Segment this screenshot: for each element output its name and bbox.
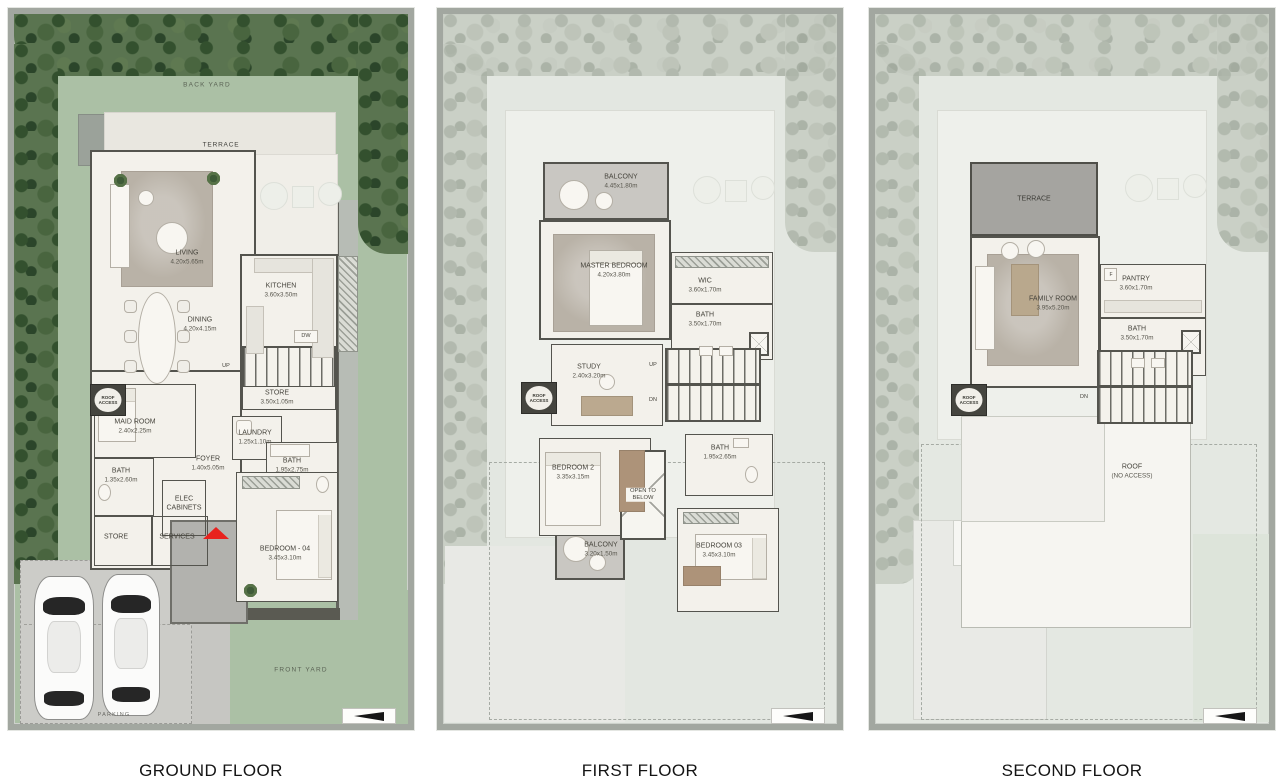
kitchen-counter xyxy=(312,258,334,358)
parking-label: PARKING xyxy=(98,712,131,718)
room-label-bath-a: BATH3.50x1.70m xyxy=(689,312,722,329)
second-floor-title: SECOND FLOOR xyxy=(869,761,1275,781)
room-label-dining: DINING4.20x4.15m xyxy=(184,317,217,334)
room-label-living: LIVING4.20x5.65m xyxy=(171,250,204,267)
plan-marker-icon xyxy=(1203,708,1257,724)
wardrobe xyxy=(619,450,645,512)
roof-access-icon: ROOF ACCESS xyxy=(956,388,983,412)
sink xyxy=(1131,358,1145,368)
room-label-bedroom2: BEDROOM 23.35x3.15m xyxy=(552,465,594,482)
room-label-elec: ELEC CABINETS xyxy=(164,495,204,513)
patio-chair xyxy=(693,176,721,204)
roof-access-icon: ROOF ACCESS xyxy=(95,388,122,412)
side-table xyxy=(138,190,154,206)
patio-table xyxy=(292,186,314,208)
patio-chair xyxy=(260,182,288,210)
sink xyxy=(1151,358,1165,368)
bathtub xyxy=(270,444,310,457)
dining-table xyxy=(138,292,176,384)
trees-texture xyxy=(14,44,58,584)
room-label-foyer: FOYER1.40x5.05m xyxy=(192,456,225,473)
room-label-balcony-b: BALCONY3.20x1.50m xyxy=(584,542,617,559)
fridge-label: F xyxy=(1109,272,1112,278)
room-label-store: STORE3.50x1.05m xyxy=(261,390,294,407)
patio-chair xyxy=(1183,174,1207,198)
trees-texture xyxy=(875,44,919,584)
back-yard-label: BACK YARD xyxy=(183,82,231,89)
closet-rail xyxy=(675,256,769,268)
stair-landing xyxy=(1097,385,1193,388)
roof-step xyxy=(961,416,1105,522)
roof-access-badge: ROOF ACCESS xyxy=(951,384,987,416)
first-floor-plan: BALCONY4.45x1.80m MASTER BEDROOM4.20x3.8… xyxy=(437,8,843,730)
outdoor-seating-deck xyxy=(242,154,338,256)
room-label-store-b: STORE xyxy=(104,534,128,543)
trees-texture xyxy=(875,14,1269,76)
terrace-label: TERRACE xyxy=(203,142,240,149)
balcony-table xyxy=(595,192,613,210)
room-label-bath-a: BATH1.95x2.75m xyxy=(276,458,309,475)
plan-marker-icon xyxy=(342,708,396,724)
roof-access-icon: ROOF ACCESS xyxy=(526,386,553,410)
room-bath-b xyxy=(685,434,773,496)
patio-table xyxy=(1157,178,1179,200)
kitchen-island xyxy=(246,306,264,354)
pantry-counter xyxy=(1104,300,1202,313)
car-icon xyxy=(102,574,160,716)
ground-floor-plan: BACK YARD TERRACE LIVING4.20x5.65m KITCH… xyxy=(8,8,414,730)
trees-texture xyxy=(443,44,487,584)
room-label-bath-b: BATH1.95x2.65m xyxy=(704,445,737,462)
toilet xyxy=(745,466,758,483)
stairs-dn-label: DN xyxy=(649,397,657,403)
second-floor-plan: TERRACE FAMILY ROOM3.95x5.20m F PANTRY3.… xyxy=(869,8,1275,730)
trees-texture xyxy=(785,14,837,252)
patio-chair xyxy=(751,176,775,200)
desk xyxy=(581,396,633,416)
patio-table xyxy=(725,180,747,202)
room-label-bedroom04: BEDROOM - 043.45x3.10m xyxy=(260,546,310,563)
room-label-balcony-a: BALCONY4.45x1.80m xyxy=(604,174,637,191)
dining-chair xyxy=(124,300,137,313)
plan-marker-icon xyxy=(771,708,825,724)
first-floor-title: FIRST FLOOR xyxy=(437,761,843,781)
wardrobe xyxy=(683,512,739,524)
sofa xyxy=(975,266,995,350)
room-label-maid: MAID ROOM2.40x2.25m xyxy=(114,419,155,436)
sink xyxy=(719,346,733,356)
patio-chair xyxy=(1125,174,1153,202)
bed xyxy=(589,250,643,326)
stairs-up-label: UP xyxy=(222,363,230,369)
toilet xyxy=(316,476,329,493)
room-label-services: SERVICES xyxy=(159,534,194,543)
room-label-bedroom3: BEDROOM 033.45x3.10m xyxy=(696,543,742,560)
room-label-bath-b: BATH1.35x2.60m xyxy=(105,468,138,485)
ac-units xyxy=(338,256,358,352)
room-label-pantry: PANTRY3.60x1.70m xyxy=(1120,276,1153,293)
room-label-kitchen: KITCHEN3.60x3.50m xyxy=(265,283,298,300)
trees-texture xyxy=(443,14,837,76)
room-label-wic: WIC3.60x1.70m xyxy=(689,278,722,295)
room-label-family: FAMILY ROOM3.95x5.20m xyxy=(1029,296,1077,313)
stairs-up-label: UP xyxy=(649,362,657,368)
room-label-roof: ROOF(NO ACCESS) xyxy=(1112,464,1153,481)
front-yard-label: FRONT YARD xyxy=(274,667,328,674)
dining-chair xyxy=(124,330,137,343)
room-label-study: STUDY2.40x3.20m xyxy=(573,364,606,381)
wardrobe xyxy=(242,476,300,489)
bed xyxy=(545,452,601,526)
roof-access-badge: ROOF ACCESS xyxy=(521,382,557,414)
toilet xyxy=(98,484,111,501)
stairs-dn-label: DN xyxy=(1080,394,1088,400)
plant-icon xyxy=(244,584,257,597)
dining-chair xyxy=(177,300,190,313)
armchair xyxy=(1027,240,1045,258)
patio-chair xyxy=(318,182,342,206)
dining-chair xyxy=(124,360,137,373)
roof-access-badge: ROOF ACCESS xyxy=(90,384,126,416)
ground-floor-title: GROUND FLOOR xyxy=(8,761,414,781)
armchair xyxy=(1001,242,1019,260)
entry-arrow-icon xyxy=(203,527,229,539)
car-icon xyxy=(34,576,94,720)
room-label-open-below: OPEN TO BELOW xyxy=(626,488,660,502)
room-label-bath: BATH3.50x1.70m xyxy=(1121,326,1154,343)
plant-icon xyxy=(114,174,127,187)
sink xyxy=(699,346,713,356)
trees-texture xyxy=(358,14,408,254)
dw-label: DW xyxy=(301,333,310,339)
trees-texture xyxy=(1217,14,1269,252)
room-label-terrace: TERRACE xyxy=(1017,196,1050,205)
plant-icon xyxy=(207,172,220,185)
trees-texture xyxy=(14,14,408,76)
dining-chair xyxy=(177,360,190,373)
stair-landing xyxy=(665,383,761,386)
room-label-laundry: LAUNDRY1.25x1.10m xyxy=(238,430,271,447)
desk xyxy=(683,566,721,586)
sofa xyxy=(110,184,130,268)
balcony-chair xyxy=(559,180,589,210)
room-label-master: MASTER BEDROOM4.20x3.80m xyxy=(580,263,647,280)
